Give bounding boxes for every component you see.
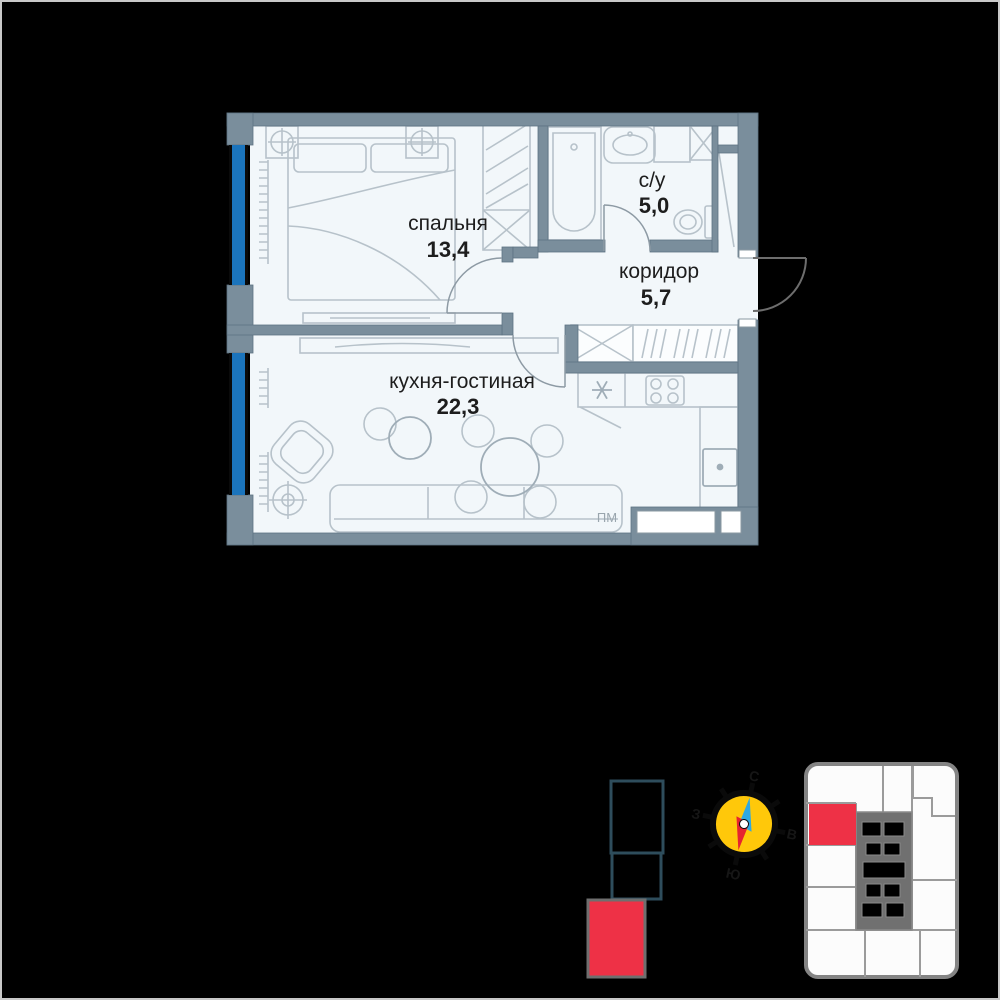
- compass-icon: С В Ю З: [680, 757, 809, 893]
- floor-plan-canvas: ПМ: [2, 2, 998, 998]
- corridor-wardrobe: [571, 325, 738, 362]
- room-area-kitchen: 22,3: [437, 394, 480, 419]
- apartment-plan: ПМ: [227, 113, 806, 545]
- room-area-bathroom: 5,0: [639, 193, 670, 218]
- key-plan-highlighted-apartment: [809, 804, 856, 845]
- compass-east-label: В: [785, 825, 798, 843]
- building-outline-middle: [612, 853, 661, 899]
- room-label-bathroom: с/у: [639, 169, 666, 192]
- room-label-corridor: коридор: [619, 260, 699, 283]
- building-section-diagram: [588, 781, 663, 977]
- room-area-bedroom: 13,4: [427, 237, 471, 262]
- compass-west-label: З: [690, 805, 702, 823]
- room-area-corridor: 5,7: [641, 285, 672, 310]
- balcony-window: [637, 511, 741, 533]
- dishwasher-label: ПМ: [597, 510, 617, 525]
- building-highlight-red: [588, 900, 645, 977]
- screenshot-frame: ПМ: [0, 0, 1000, 1000]
- building-outline-upper: [611, 781, 663, 853]
- floor-key-plan: [806, 764, 957, 977]
- compass-south-label: Ю: [725, 865, 742, 884]
- compass-north-label: С: [748, 767, 761, 785]
- room-label-kitchen: кухня-гостиная: [389, 370, 535, 393]
- room-label-bedroom: спальня: [408, 212, 488, 235]
